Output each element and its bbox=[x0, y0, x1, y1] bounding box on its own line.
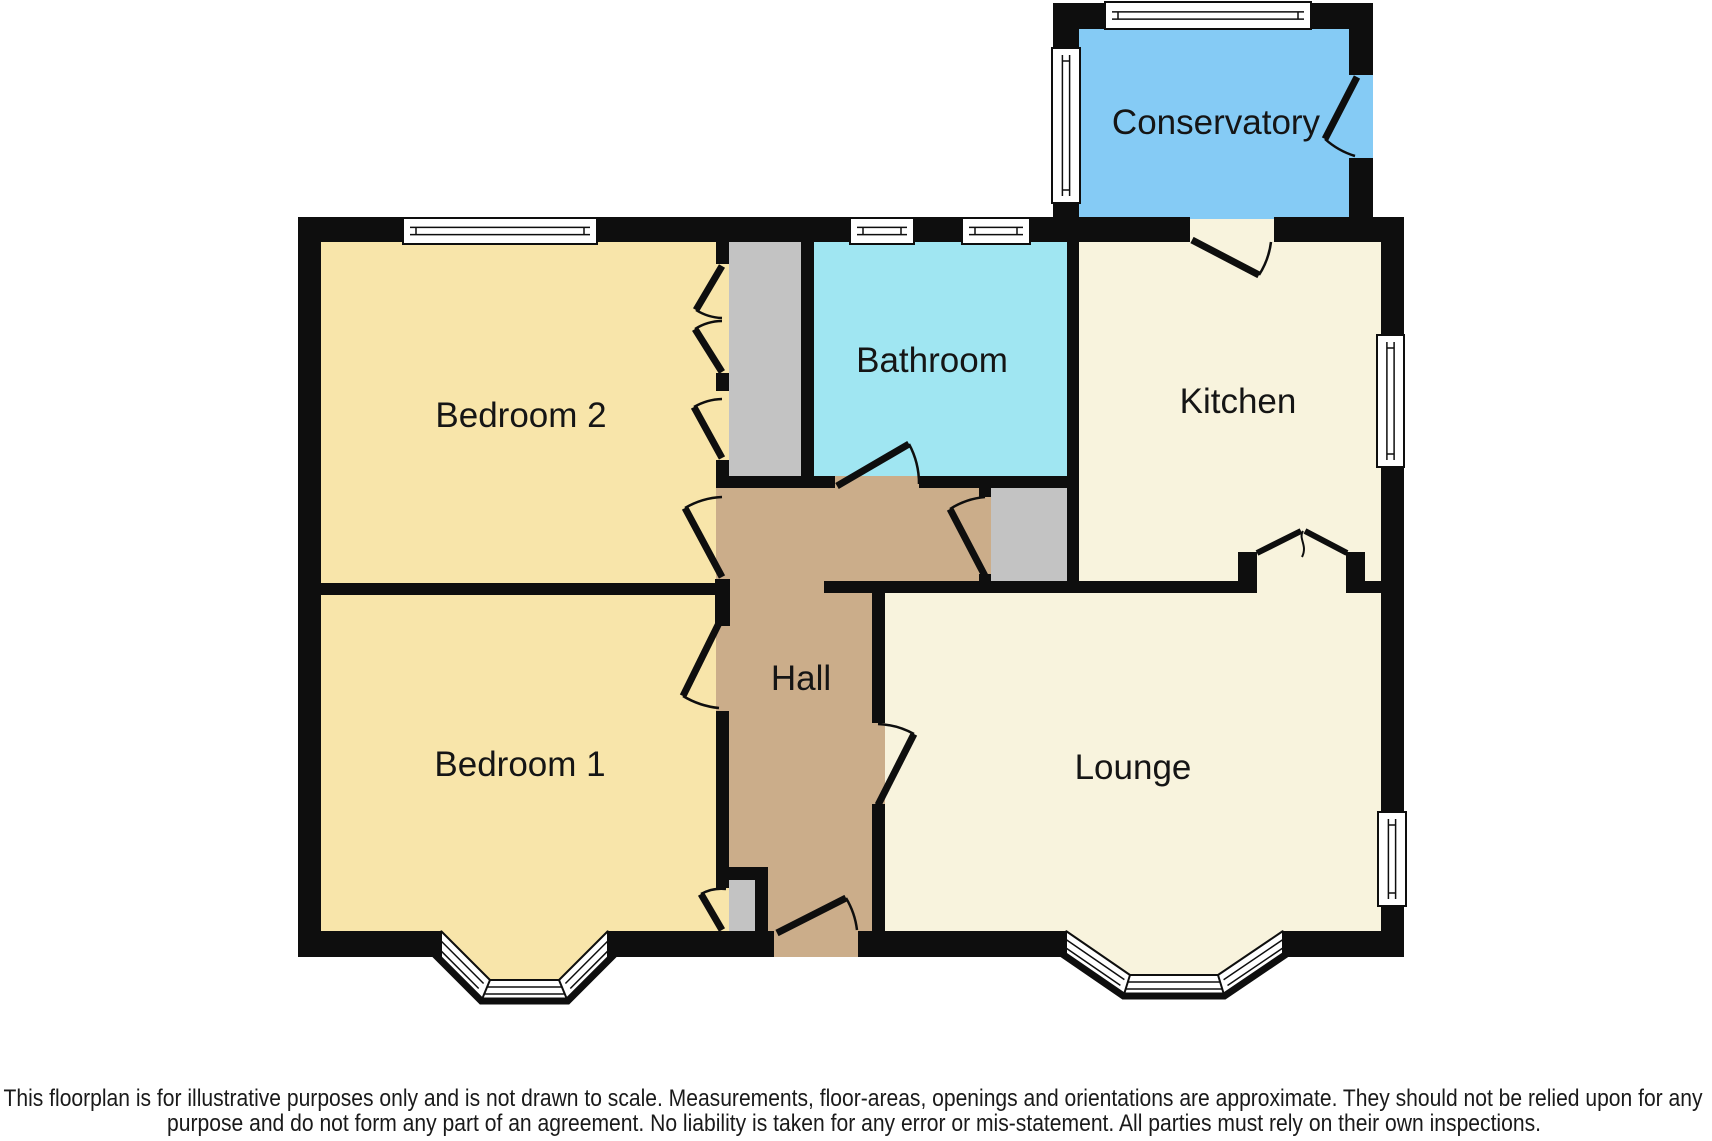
svg-text:Hall: Hall bbox=[771, 659, 831, 698]
svg-text:Bedroom 2: Bedroom 2 bbox=[435, 396, 606, 435]
svg-text:Conservatory: Conservatory bbox=[1112, 103, 1321, 142]
svg-text:Kitchen: Kitchen bbox=[1180, 382, 1297, 421]
svg-text:Lounge: Lounge bbox=[1075, 748, 1192, 787]
svg-text:Bedroom 1: Bedroom 1 bbox=[434, 745, 605, 784]
svg-text:purpose and do not form any pa: purpose and do not form any part of an a… bbox=[167, 1110, 1541, 1136]
svg-text:This floorplan is for illustra: This floorplan is for illustrative purpo… bbox=[4, 1085, 1703, 1112]
svg-text:Bathroom: Bathroom bbox=[856, 341, 1008, 380]
